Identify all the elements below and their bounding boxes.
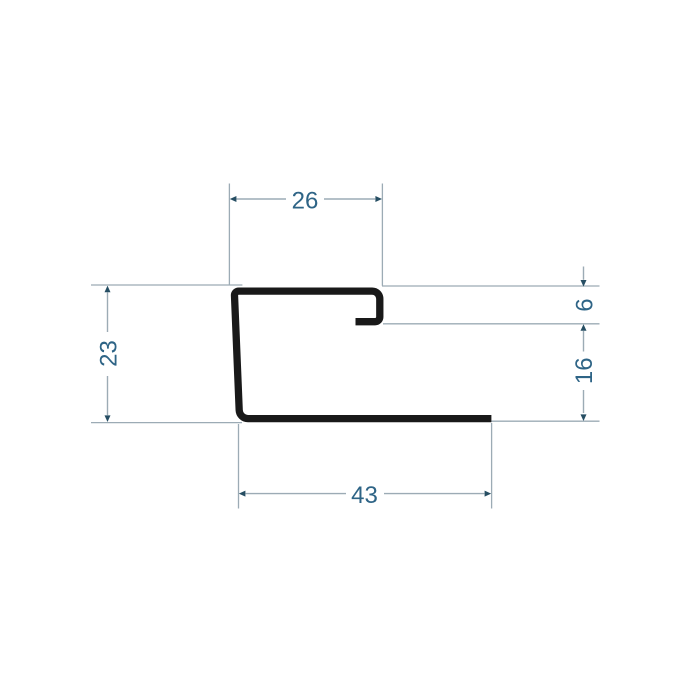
svg-text:43: 43	[351, 482, 378, 509]
svg-text:16: 16	[571, 357, 598, 384]
svg-text:6: 6	[572, 298, 599, 311]
svg-text:26: 26	[292, 188, 319, 215]
svg-text:23: 23	[96, 340, 123, 367]
